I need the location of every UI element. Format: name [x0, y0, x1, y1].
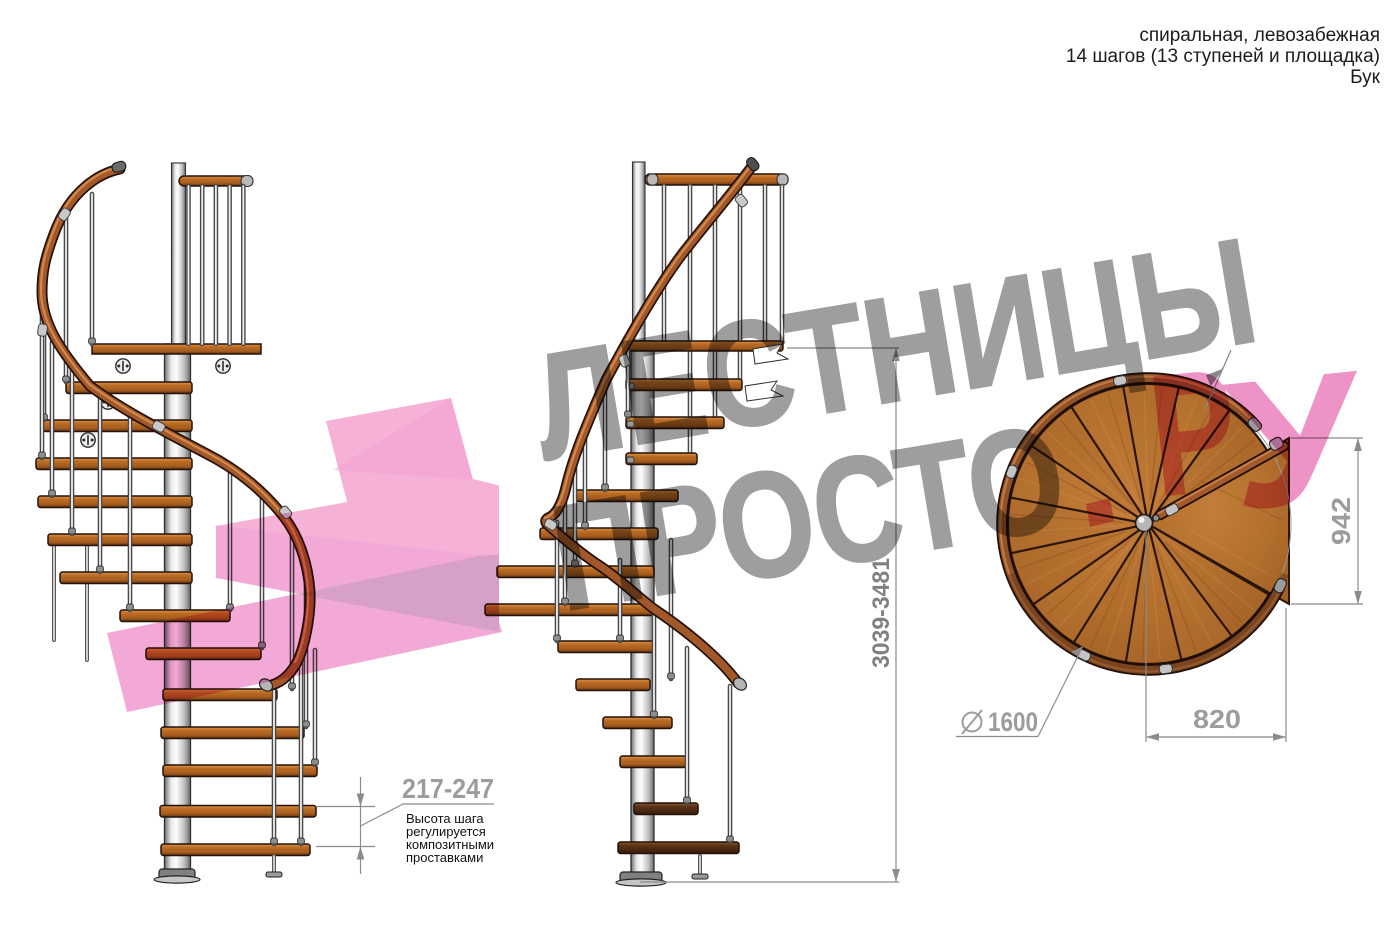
svg-text:У: У — [1219, 334, 1373, 548]
svg-text:14 шагов (13 ступеней и площад: 14 шагов (13 ступеней и площадка) — [1066, 46, 1380, 67]
svg-text:1600: 1600 — [988, 707, 1038, 737]
svg-text:820: 820 — [1193, 704, 1241, 734]
svg-text:Бук: Бук — [1350, 67, 1381, 88]
svg-text:217-247: 217-247 — [402, 773, 494, 804]
svg-text:спиральная, левозабежная: спиральная, левозабежная — [1139, 25, 1380, 46]
svg-text:проставками: проставками — [406, 850, 483, 865]
